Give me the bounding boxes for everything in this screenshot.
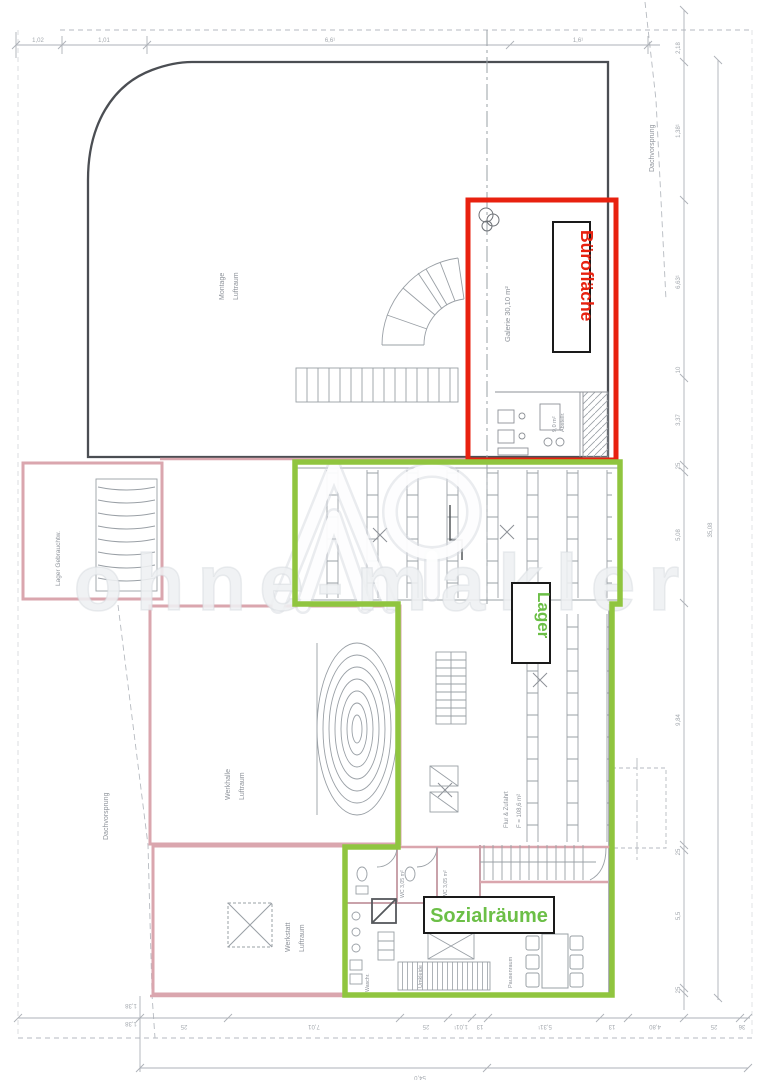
site-label-overhang-left: Dachvorsprung xyxy=(103,792,110,840)
room-label-abstell-1: 9,0 m² xyxy=(552,416,558,432)
coil-stock xyxy=(317,643,397,815)
dim-right-9: 5,5 xyxy=(676,911,682,920)
lager-label-box: Lager xyxy=(512,583,553,663)
dim-top-2: 6,6¹ xyxy=(325,38,335,44)
werkstatt-building xyxy=(153,846,345,994)
stair-main xyxy=(480,845,606,880)
dim-right-0: 2,18 xyxy=(676,42,682,54)
room-label-flur-2: F = 108,6 m² xyxy=(517,794,523,828)
break-table xyxy=(526,934,583,988)
room-label-waschraum: Waschr. xyxy=(365,973,371,992)
dim-bottom-8: 13 xyxy=(608,1023,615,1029)
room-label-hall-1: Montage xyxy=(219,273,226,300)
dim-bottom-11: 36 xyxy=(738,1023,745,1029)
dim-bottom-5: 1,01¹ xyxy=(454,1023,468,1029)
room-label-annex: Lager Gebrauchtw. xyxy=(55,531,62,586)
watermark-text: ohne-makler xyxy=(74,538,693,627)
dim-right-1: 1,38¹ xyxy=(676,124,682,138)
dim-right-total: 35,08 xyxy=(708,522,714,538)
spiral-stair xyxy=(382,258,464,345)
dim-right-7: 9,84 xyxy=(676,714,682,726)
dim-right-4: 3,37 xyxy=(676,414,682,426)
dim-bottom-total: 54,0 xyxy=(414,1074,426,1080)
room-label-umkleide: Umkleide xyxy=(418,965,424,988)
dim-top-0: 1,02 xyxy=(32,38,44,44)
room-label-hall-2: Luftraum xyxy=(233,272,240,300)
sozial-label-box: Sozialräume xyxy=(424,897,554,933)
room-label-flur-1: Flur & Zufahrt xyxy=(504,791,510,828)
dim-bottom-0: 1,38 xyxy=(125,1002,137,1008)
dim-right-2: 6,63¹ xyxy=(676,275,682,289)
dim-right-8: 25 xyxy=(676,848,682,855)
lager-label-text: Lager xyxy=(534,592,553,639)
dim-right-3: 10 xyxy=(676,366,682,373)
room-label-wc1: WC 3,05 m² xyxy=(400,870,406,898)
site-label-overhang-right: Dachvorsprung xyxy=(649,124,656,172)
dim-bottom-3: 7,01 xyxy=(308,1023,320,1029)
dim-bottom-10: 25 xyxy=(710,1023,717,1029)
buero-label-text: Bürofläche xyxy=(577,230,597,322)
dim-bottom-1: 1,38 xyxy=(125,1020,137,1026)
sozial-label-text: Sozialräume xyxy=(430,905,548,927)
dim-bottom-4: 25 xyxy=(422,1023,429,1029)
dim-top-3: 1,6¹ xyxy=(573,38,583,44)
dim-right-10: 25 xyxy=(676,986,682,993)
room-label-wc2: WC 3,05 m² xyxy=(443,870,449,898)
lager-stair xyxy=(430,652,466,812)
dim-bottom-6: 13 xyxy=(476,1023,483,1029)
room-label-werkhalle-1: Werkhalle xyxy=(225,769,232,800)
dim-right-5: 25 xyxy=(676,462,682,469)
dim-bottom-7: 5,31¹ xyxy=(538,1023,552,1029)
floorplan-scan: Montage Luftraum Galerie 30,10 m² 9,0 m²… xyxy=(0,0,761,1080)
room-label-werkstatt-2: Luftraum xyxy=(299,924,306,952)
room-label-pausenraum: Pausenraum xyxy=(508,956,514,988)
dim-bottom-2: 25 xyxy=(180,1023,187,1029)
room-label-werkstatt-1: Werkstatt xyxy=(285,923,292,952)
room-label-werkhalle-2: Luftraum xyxy=(239,772,246,800)
dim-top-1: 1,01 xyxy=(98,38,110,44)
room-label-abstell-2: Abstellr. xyxy=(560,412,566,432)
tree-symbol xyxy=(479,208,499,231)
floorplan-svg: Montage Luftraum Galerie 30,10 m² 9,0 m²… xyxy=(0,0,761,1080)
shelf-strip xyxy=(296,368,458,402)
room-label-galerie: Galerie 30,10 m² xyxy=(503,286,512,342)
dim-bottom-9: 4,80 xyxy=(649,1023,661,1029)
buero-label-box: Bürofläche xyxy=(553,222,597,352)
